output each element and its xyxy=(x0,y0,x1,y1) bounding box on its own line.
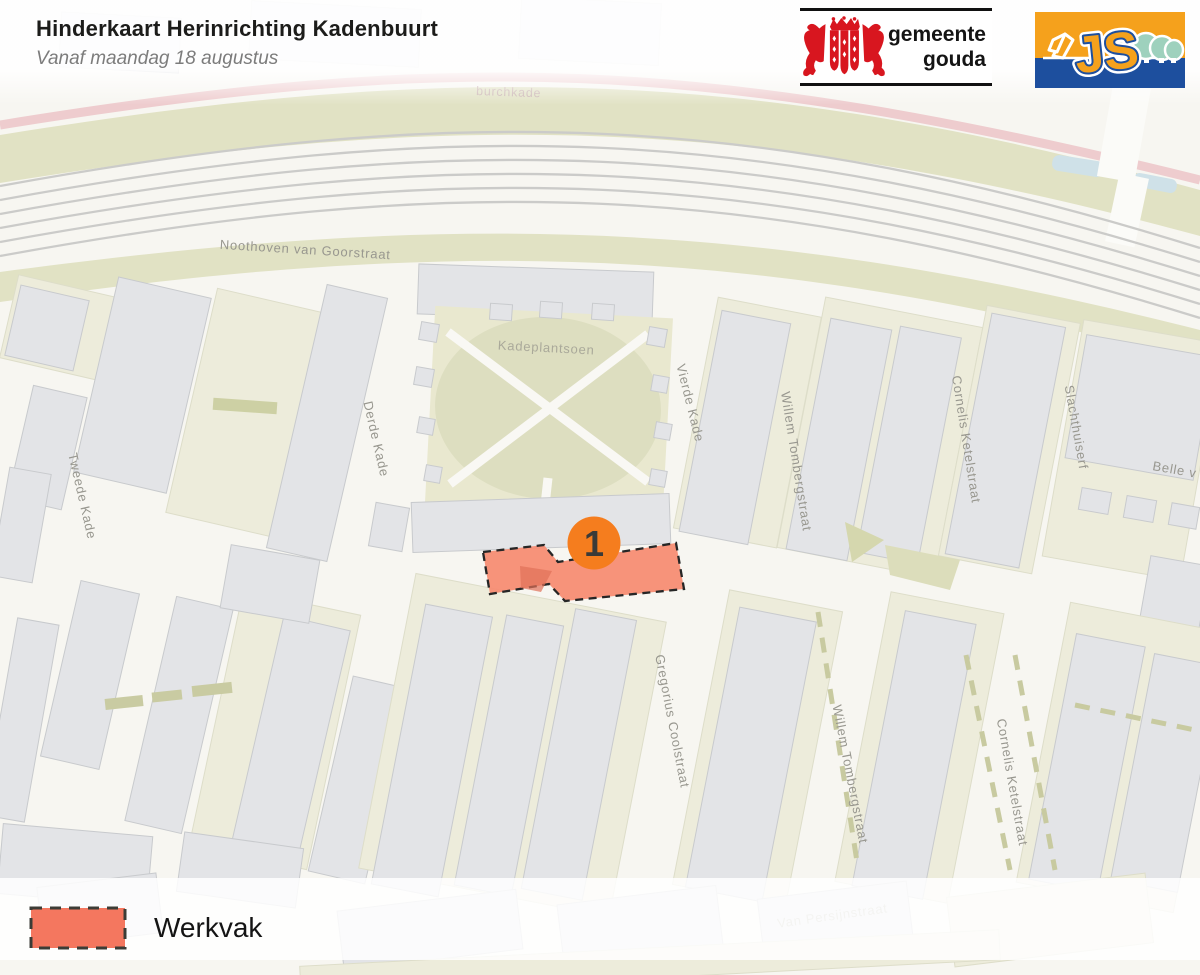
gouda-coat-of-arms-icon xyxy=(800,13,888,81)
legend-item-werkvak: Werkvak xyxy=(28,905,262,951)
header: Hinderkaart Herinrichting Kadenbuurt Van… xyxy=(36,16,438,70)
contractor-logo: JS JS xyxy=(1035,12,1185,88)
map-buildings xyxy=(0,264,1200,975)
street-label-burchkade: burchkade xyxy=(476,84,542,100)
kadeplantsoen-park xyxy=(414,301,673,514)
city-map: 1 burchkade Noothoven van Goorstraat Kad… xyxy=(0,0,1200,975)
page-title: Hinderkaart Herinrichting Kadenbuurt xyxy=(36,16,438,42)
gouda-logo-line2: gouda xyxy=(923,47,986,72)
contractor-monogram: JS xyxy=(1072,21,1141,85)
street-label-cornelis-ketelstraat-south: Cornelis Ketelstraat xyxy=(994,717,1031,847)
gouda-logo-line1: gemeente xyxy=(888,22,986,47)
marker-1: 1 xyxy=(568,517,621,570)
gouda-logo-text: gemeente gouda xyxy=(888,22,992,72)
marker-number: 1 xyxy=(584,523,604,564)
street-label-derde-kade: Derde Kade xyxy=(360,400,392,479)
hinder-map-page: 1 burchkade Noothoven van Goorstraat Kad… xyxy=(0,0,1200,975)
legend-label: Werkvak xyxy=(154,912,262,944)
gemeente-gouda-logo: gemeente gouda xyxy=(800,8,992,86)
street-label-gregorius-coolstraat: Gregorius Coolstraat xyxy=(652,653,693,789)
contractor-logo-icon: JS JS xyxy=(1035,12,1185,88)
werkvak-swatch-icon xyxy=(28,905,128,951)
page-subtitle: Vanaf maandag 18 augustus xyxy=(36,48,438,70)
